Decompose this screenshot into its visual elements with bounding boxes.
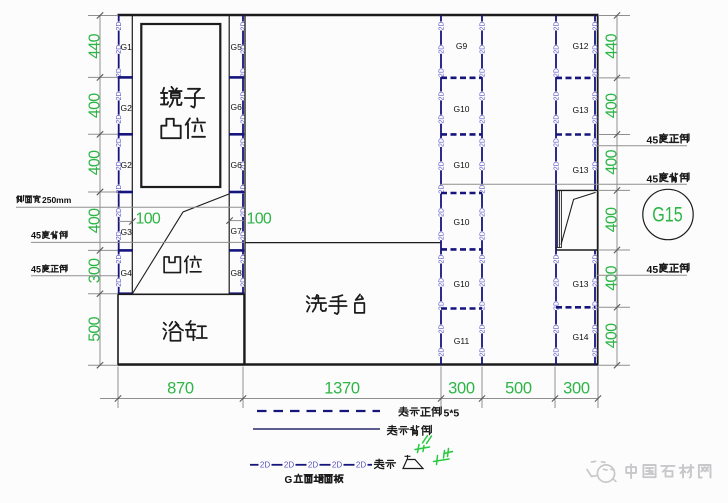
svg-text:440: 440	[86, 33, 103, 58]
svg-text:2D: 2D	[593, 91, 600, 100]
svg-text:870: 870	[167, 380, 194, 398]
svg-text:2D: 2D	[480, 255, 487, 264]
svg-text:45: 45	[31, 231, 41, 241]
svg-text:2D: 2D	[480, 324, 487, 333]
svg-text:2D: 2D	[480, 91, 487, 100]
svg-text:G3: G3	[121, 227, 133, 237]
svg-text:2D: 2D	[480, 138, 487, 147]
svg-text:2D: 2D	[593, 255, 600, 264]
svg-text:100: 100	[136, 211, 161, 228]
svg-text:2D: 2D	[241, 68, 248, 77]
svg-text:2D: 2D	[439, 208, 446, 217]
svg-text:300: 300	[563, 380, 590, 398]
svg-text:2D: 2D	[241, 22, 248, 31]
svg-text:1370: 1370	[324, 380, 360, 398]
svg-text:2D: 2D	[593, 301, 600, 310]
svg-text:2D: 2D	[554, 161, 561, 170]
svg-text:G: G	[285, 475, 293, 486]
svg-text:300: 300	[86, 258, 103, 283]
svg-text:2D: 2D	[241, 115, 248, 124]
svg-text:2D: 2D	[480, 45, 487, 54]
svg-text:2D: 2D	[116, 115, 123, 124]
svg-text:2D: 2D	[593, 115, 600, 124]
svg-text:2D: 2D	[116, 278, 123, 287]
svg-text:G10: G10	[453, 279, 469, 289]
svg-text:2D: 2D	[439, 161, 446, 170]
svg-text:G10: G10	[453, 104, 469, 114]
svg-text:2D: 2D	[554, 115, 561, 124]
svg-text:400: 400	[86, 150, 103, 175]
svg-text:G6: G6	[231, 160, 243, 170]
svg-text:2D: 2D	[116, 68, 123, 77]
svg-text:2D: 2D	[480, 161, 487, 170]
svg-text:G1: G1	[121, 42, 133, 52]
svg-text:2D: 2D	[308, 460, 318, 469]
svg-text:G2: G2	[121, 103, 133, 113]
svg-text:G8: G8	[231, 268, 243, 278]
svg-text:2D: 2D	[116, 255, 123, 264]
svg-text:500: 500	[86, 316, 103, 341]
svg-text:2D: 2D	[554, 301, 561, 310]
svg-text:2D: 2D	[241, 138, 248, 147]
svg-text:2D: 2D	[439, 324, 446, 333]
svg-text:2D: 2D	[116, 138, 123, 147]
svg-text:5*5: 5*5	[444, 407, 460, 419]
svg-text:2D: 2D	[593, 324, 600, 333]
svg-text:2D: 2D	[439, 68, 446, 77]
svg-text:45: 45	[647, 134, 659, 146]
svg-text:2D: 2D	[332, 460, 342, 469]
svg-text:2D: 2D	[284, 460, 294, 469]
svg-text:2D: 2D	[260, 460, 270, 469]
svg-text:G13: G13	[572, 105, 588, 115]
svg-text:45: 45	[647, 264, 659, 276]
svg-text:2D: 2D	[116, 22, 123, 31]
svg-text:2D: 2D	[593, 22, 600, 31]
svg-text:2D: 2D	[593, 278, 600, 287]
svg-text:400: 400	[603, 149, 620, 174]
svg-text:2D: 2D	[480, 68, 487, 77]
svg-text:2D: 2D	[116, 208, 123, 217]
svg-text:2D: 2D	[554, 45, 561, 54]
svg-text:2D: 2D	[480, 115, 487, 124]
svg-text:400: 400	[86, 208, 103, 233]
svg-text:100: 100	[247, 211, 272, 228]
svg-text:2D: 2D	[554, 22, 561, 31]
svg-text:2D: 2D	[554, 68, 561, 77]
svg-text:2D: 2D	[439, 138, 446, 147]
svg-text:2D: 2D	[480, 278, 487, 287]
svg-text:45: 45	[31, 264, 41, 274]
svg-text:2D: 2D	[480, 348, 487, 357]
svg-text:2D: 2D	[439, 22, 446, 31]
svg-text:2D: 2D	[439, 278, 446, 287]
svg-text:2D: 2D	[554, 278, 561, 287]
svg-text:2D: 2D	[554, 138, 561, 147]
svg-text:G13: G13	[572, 165, 588, 175]
svg-text:G2: G2	[121, 160, 133, 170]
svg-text:2D: 2D	[241, 255, 248, 264]
svg-text:G13: G13	[572, 279, 588, 289]
svg-text:2D: 2D	[116, 91, 123, 100]
svg-text:300: 300	[448, 380, 475, 398]
svg-text:2D: 2D	[439, 348, 446, 357]
svg-text:G4: G4	[121, 268, 133, 278]
svg-text:G10: G10	[453, 217, 469, 227]
svg-text:G14: G14	[572, 332, 588, 342]
svg-text:2D: 2D	[554, 255, 561, 264]
svg-text:G9: G9	[456, 41, 468, 51]
svg-text:G11: G11	[454, 336, 470, 346]
svg-text:2D: 2D	[439, 115, 446, 124]
svg-text:2D: 2D	[439, 45, 446, 54]
svg-text:2D: 2D	[439, 231, 446, 240]
svg-text:2D: 2D	[593, 348, 600, 357]
svg-text:2D: 2D	[593, 161, 600, 170]
svg-text:G10: G10	[453, 160, 469, 170]
svg-text:2D: 2D	[554, 324, 561, 333]
svg-text:250mm: 250mm	[42, 195, 72, 205]
svg-text:2D: 2D	[241, 91, 248, 100]
svg-text:2D: 2D	[554, 91, 561, 100]
svg-text:G7: G7	[231, 226, 243, 236]
svg-text:G12: G12	[572, 41, 588, 51]
svg-text:G5: G5	[231, 42, 243, 52]
svg-text:2D: 2D	[356, 460, 366, 469]
svg-text:45: 45	[647, 173, 659, 185]
svg-text:2D: 2D	[593, 45, 600, 54]
svg-text:440: 440	[603, 33, 620, 58]
svg-text:2D: 2D	[241, 278, 248, 287]
svg-text:G6: G6	[231, 102, 243, 112]
svg-text:2D: 2D	[439, 255, 446, 264]
svg-text:2D: 2D	[554, 348, 561, 357]
svg-text:400: 400	[603, 265, 620, 290]
svg-text:400: 400	[603, 323, 620, 348]
svg-text:400: 400	[603, 93, 620, 118]
svg-text:G15: G15	[652, 203, 682, 227]
svg-text:2D: 2D	[439, 91, 446, 100]
svg-text:2D: 2D	[480, 208, 487, 217]
svg-text:500: 500	[505, 380, 532, 398]
svg-text:2D: 2D	[480, 231, 487, 240]
svg-text:400: 400	[603, 207, 620, 232]
svg-text:400: 400	[86, 93, 103, 118]
svg-text:2D: 2D	[480, 22, 487, 31]
svg-text:2D: 2D	[593, 68, 600, 77]
